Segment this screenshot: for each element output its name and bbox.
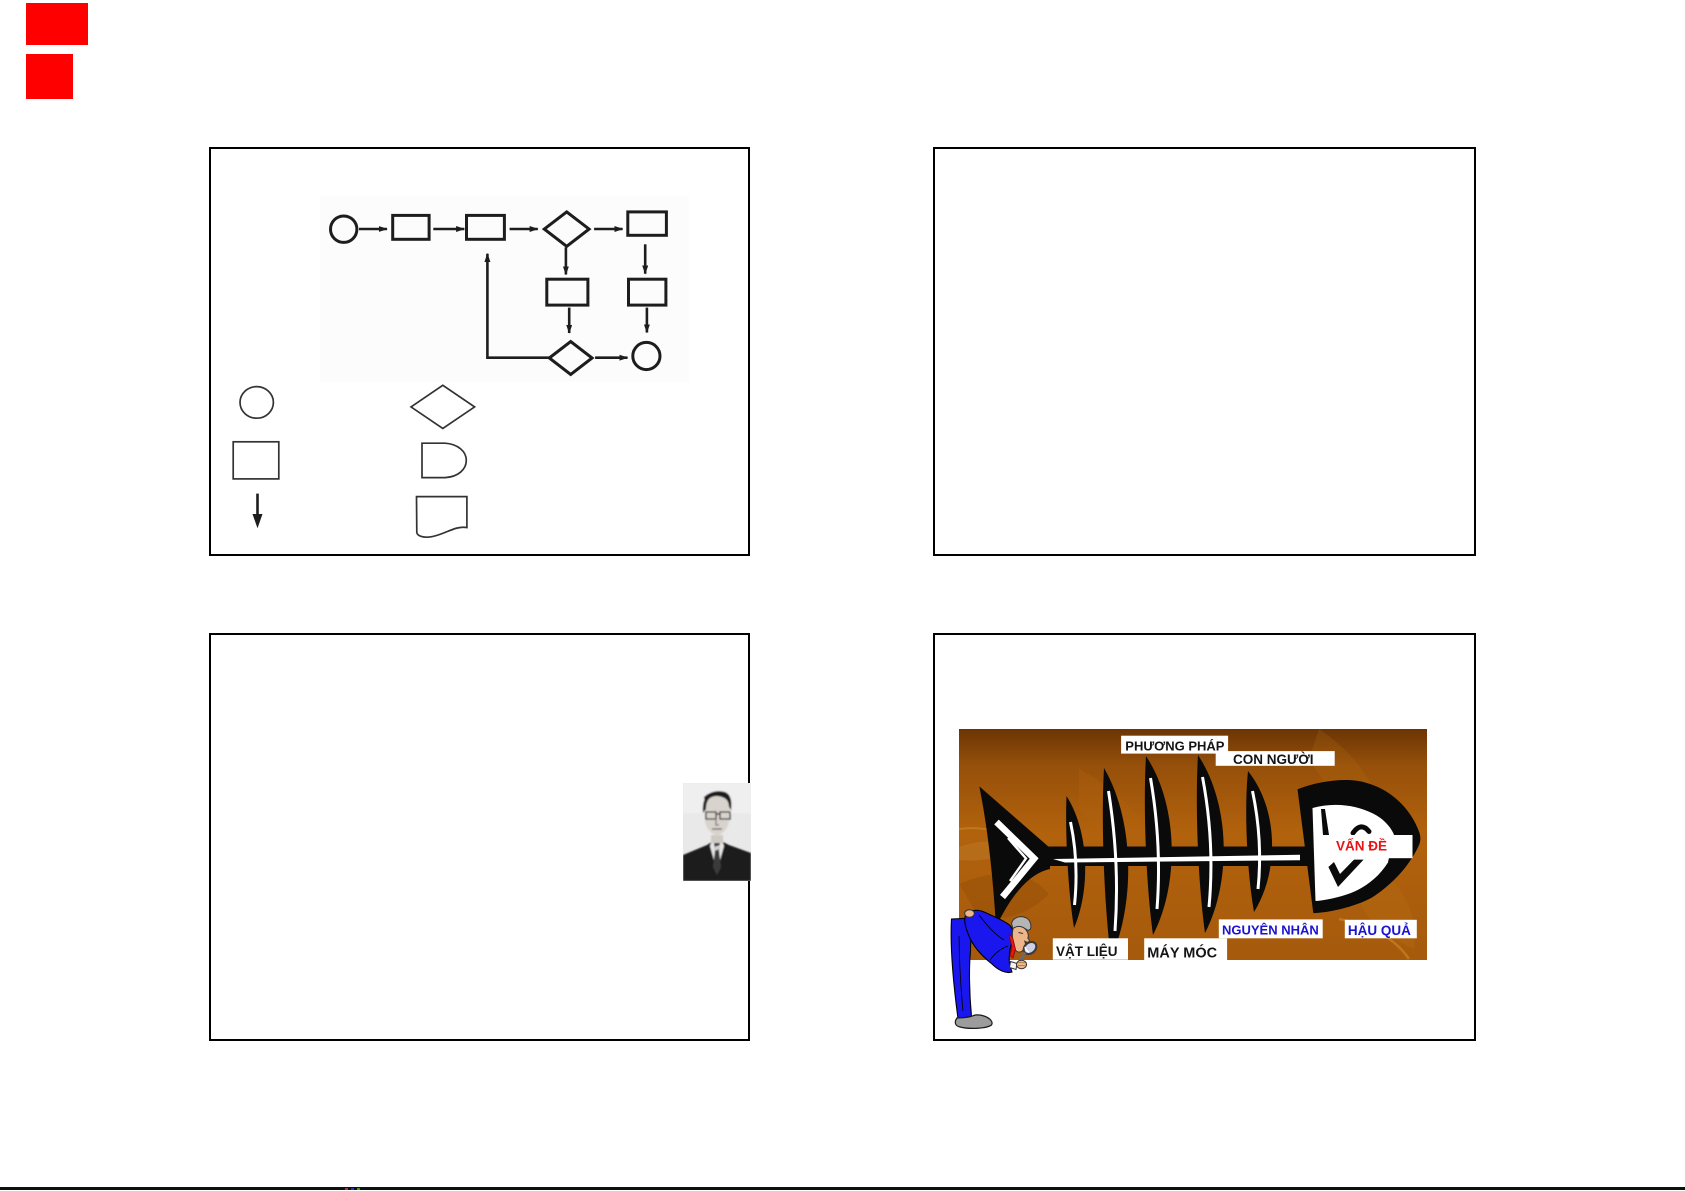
svg-text:CON NGƯỜI: CON NGƯỜI [1233, 752, 1313, 767]
svg-text:HẬU QUẢ: HẬU QUẢ [1348, 923, 1411, 938]
svg-text:VẤN ĐỀ: VẤN ĐỀ [1336, 838, 1387, 853]
svg-text:PHƯƠNG PHÁP: PHƯƠNG PHÁP [1125, 738, 1224, 753]
svg-text:VẬT LIỆU: VẬT LIỆU [1056, 944, 1118, 959]
svg-text:MÁY MÓC: MÁY MÓC [1147, 944, 1217, 961]
svg-text:NGUYÊN NHÂN: NGUYÊN NHÂN [1222, 923, 1319, 938]
